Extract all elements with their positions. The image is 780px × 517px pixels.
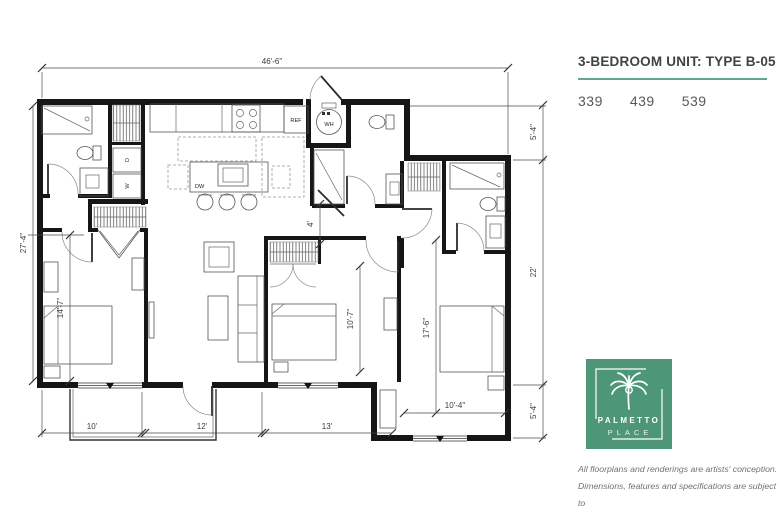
bath1-toilet xyxy=(77,146,101,160)
bath3-fixtures xyxy=(450,163,505,248)
hall-door xyxy=(318,190,344,216)
window-bed1 xyxy=(78,383,142,389)
bath1-tub xyxy=(42,106,92,134)
palm-tree-icon: PALMETTO PLACE xyxy=(586,359,672,449)
bed2-nightstand xyxy=(274,362,288,372)
dim-left: 27'-4" 14'-7" xyxy=(19,102,84,385)
bed1-nightstand xyxy=(44,262,58,292)
floor-plan: D W REF DW xyxy=(0,0,560,517)
svg-text:10': 10' xyxy=(87,422,98,431)
bed3-nightstand xyxy=(488,376,504,390)
bath2-vanity xyxy=(386,174,402,204)
disclaimer-line: Dimensions, features and specifications … xyxy=(578,478,778,512)
dim-bed3-width: 10'-4" xyxy=(400,401,509,417)
bed3-bed xyxy=(440,306,504,372)
bed3-door xyxy=(402,209,432,238)
window-bed3 xyxy=(413,436,467,442)
info-panel: 3-BEDROOM UNIT: TYPE B-05 339 439 539 xyxy=(578,54,770,109)
kitchen: REF DW xyxy=(150,104,308,210)
window-bed2 xyxy=(278,383,338,389)
page-title: 3-BEDROOM UNIT: TYPE B-05 xyxy=(578,54,770,69)
walls xyxy=(37,99,511,441)
bed3-dresser xyxy=(380,390,396,428)
logo-line2: PLACE xyxy=(608,428,653,437)
dim-bed3-depth: 17'-6" xyxy=(422,236,440,417)
island-stools xyxy=(197,194,257,210)
bath3-vanity xyxy=(486,216,505,248)
bed2-dresser xyxy=(384,298,397,330)
disclaimer: All floorplans and renderings are artist… xyxy=(578,461,778,517)
bath2-toilet xyxy=(369,115,394,129)
laundry-closet: D W xyxy=(113,148,141,198)
svg-text:22': 22' xyxy=(529,266,538,277)
dim-bottom: 10' 12' 13' xyxy=(38,390,396,437)
unit-numbers: 339 439 539 xyxy=(578,93,770,109)
bed2-furniture xyxy=(272,298,397,372)
sofa xyxy=(238,276,264,362)
dryer-label: D xyxy=(125,158,131,162)
balcony-door xyxy=(183,386,212,416)
unit-number: 539 xyxy=(682,93,707,109)
tv xyxy=(149,302,154,338)
dim-bed2: 10'-7" xyxy=(346,262,364,376)
bed1-bed xyxy=(44,306,112,364)
svg-text:17'-6": 17'-6" xyxy=(422,318,431,339)
svg-text:13': 13' xyxy=(322,422,333,431)
bath3-toilet xyxy=(480,197,505,211)
bed1-dresser xyxy=(132,258,144,290)
bed2-bed xyxy=(272,304,336,360)
kitchen-counter xyxy=(150,104,284,132)
svg-text:27'-4": 27'-4" xyxy=(19,233,28,254)
side-table xyxy=(208,296,228,340)
bed1-door xyxy=(62,232,92,262)
bath3-door xyxy=(457,223,484,251)
svg-text:14'-7": 14'-7" xyxy=(56,298,65,319)
bath2-door xyxy=(347,176,375,204)
disclaimer-line: change at the discretion of the builder. xyxy=(578,512,778,517)
bed1-nightstand2 xyxy=(44,366,60,378)
disclaimer-line: All floorplans and renderings are artist… xyxy=(578,461,778,478)
stove xyxy=(232,105,260,132)
water-heater-closet: WH xyxy=(317,103,342,135)
bath1-vanity xyxy=(80,168,108,196)
bed1-closet-doors xyxy=(98,230,140,258)
page: D W REF DW xyxy=(0,0,780,517)
dishwasher-label: DW xyxy=(195,184,205,190)
svg-text:10'-7": 10'-7" xyxy=(346,309,355,330)
unit-number: 439 xyxy=(630,93,655,109)
bed2-door xyxy=(366,240,398,272)
bath2-fixtures xyxy=(314,115,402,204)
armchair xyxy=(204,242,234,272)
water-heater-label: WH xyxy=(324,122,333,128)
logo-line1: PALMETTO xyxy=(598,416,660,425)
palmetto-place-logo: PALMETTO PLACE xyxy=(586,359,672,449)
kitchen-island: DW xyxy=(190,162,268,192)
living-furniture xyxy=(149,242,264,362)
bath1-fixtures xyxy=(42,106,108,196)
unit-number: 339 xyxy=(578,93,603,109)
dim-right: 5'-4" 22' 5'-4" xyxy=(513,101,547,442)
svg-text:12': 12' xyxy=(197,422,208,431)
bath1-door xyxy=(48,164,78,194)
washer-label: W xyxy=(125,183,131,189)
svg-text:46'-6": 46'-6" xyxy=(262,57,283,66)
svg-text:5'-4": 5'-4" xyxy=(529,403,538,419)
svg-text:10'-4": 10'-4" xyxy=(445,401,466,410)
svg-text:5'-4": 5'-4" xyxy=(529,124,538,140)
title-underline xyxy=(578,78,767,80)
svg-text:4': 4' xyxy=(306,221,315,227)
bed2-closet-doors xyxy=(270,264,316,287)
refrigerator: REF xyxy=(284,106,308,133)
svg-text:REF: REF xyxy=(290,118,302,124)
entry-door xyxy=(310,76,342,100)
